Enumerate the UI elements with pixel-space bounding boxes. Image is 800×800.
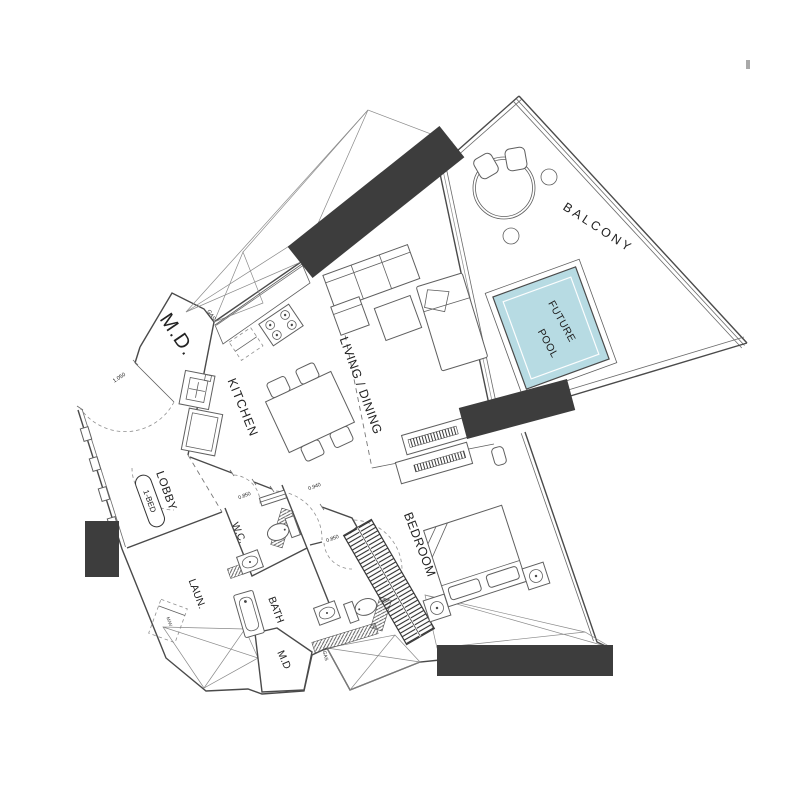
annotation-gas-lower: GAS <box>321 650 329 661</box>
wall-highlight-top <box>288 126 465 278</box>
dining-table <box>259 357 361 467</box>
dimension-entry-door: 1.050 <box>112 372 127 385</box>
daybed <box>416 273 488 371</box>
coffee-table <box>374 296 421 341</box>
entry-door-leaf <box>135 363 174 402</box>
floor-plan-page: M.D. GAS KITCHEN LIVING / DINING LOBBY 1… <box>0 0 800 800</box>
nightstand <box>522 562 550 590</box>
pool-water <box>493 267 609 389</box>
room-label-laundry: LAUN. <box>186 577 208 610</box>
planter-icon <box>541 169 557 185</box>
dimension-ensuite-door: 0.850 <box>326 534 340 544</box>
balcony-furniture <box>472 146 557 244</box>
floor-plan-drawing: M.D. GAS KITCHEN LIVING / DINING LOBBY 1… <box>0 0 800 800</box>
room-label-md-lower: M.D <box>274 649 293 672</box>
future-pool <box>485 259 617 397</box>
wall-highlight-middle <box>459 379 575 439</box>
fridge-icon <box>181 408 222 456</box>
print-artifact <box>746 60 750 69</box>
ensuite-door-swing <box>324 543 352 569</box>
sink-icon <box>314 601 341 625</box>
bed <box>424 505 527 606</box>
bathtub-icon <box>233 590 264 638</box>
wall-highlights <box>85 126 613 676</box>
dimension-bedroom-door: 0.940 <box>308 482 322 492</box>
kitchen-sink-icon <box>179 370 215 409</box>
washer-label: M/W <box>165 616 173 627</box>
room-label-md-upper: M.D. <box>155 309 199 360</box>
wc-door-swing <box>234 475 260 505</box>
wall-highlight-left <box>85 521 119 577</box>
wall-highlight-bottom <box>437 645 613 676</box>
dimension-wc-door: 0.850 <box>238 491 252 501</box>
room-label-kitchen: KITCHEN <box>225 376 261 439</box>
bath-fixtures <box>149 490 380 643</box>
entry-door-swing <box>80 402 174 432</box>
room-label-wc: W.C. <box>229 521 248 545</box>
planter-icon <box>503 228 519 244</box>
room-label-balcony: BALCONY <box>561 200 636 256</box>
room-label-bath: BATH <box>265 595 286 625</box>
stove-icon <box>259 304 303 346</box>
